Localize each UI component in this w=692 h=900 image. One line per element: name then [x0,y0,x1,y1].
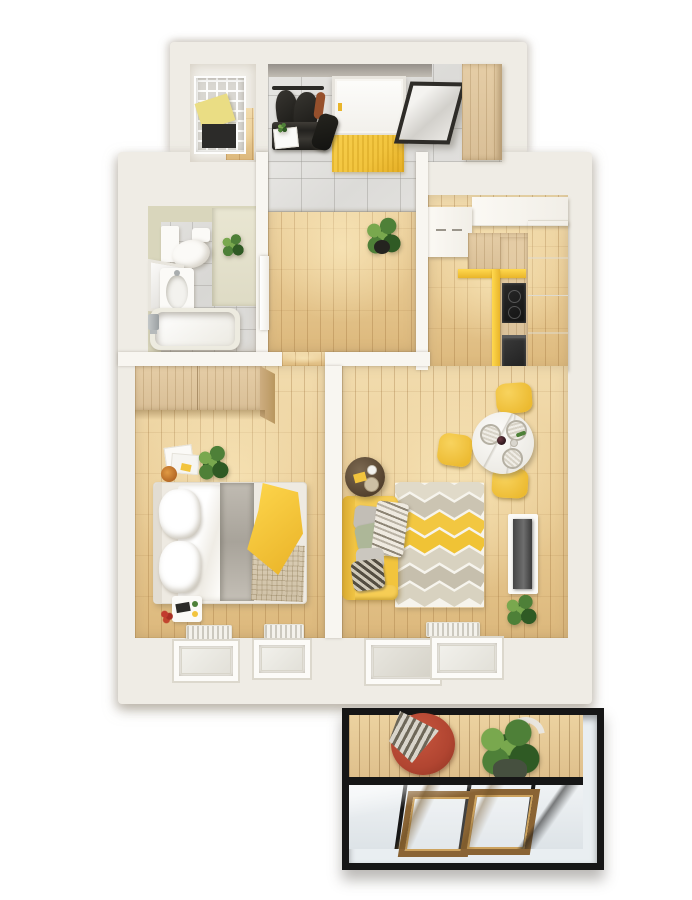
bathtub-faucet [148,314,159,330]
window-pane [261,647,303,671]
bedroom-wardrobe [135,366,262,410]
kitchen-cabinet-block [428,207,472,257]
bed-pillow-2 [158,540,203,594]
sink-faucet [174,270,180,276]
bathtub [150,308,240,350]
orange-decor-dish [161,466,177,482]
balcony-door [366,640,440,684]
door-pane [373,647,433,677]
coffee-table [345,457,385,497]
bathroom-plant [218,232,246,260]
entrance-wood-wardrobe [462,64,502,160]
bathtub-inner [155,312,235,346]
bedroom-plant [193,442,231,486]
cabinet-handle-2 [452,229,462,231]
living-room-plant [500,592,540,630]
black-storage-box [202,124,236,148]
hallway [268,162,416,352]
red-flowers [161,610,173,624]
coffee-table-cup [367,465,377,475]
dining-chair-west [436,432,474,468]
glazing-reflections [349,785,583,849]
dining-table [472,412,534,474]
bathroom [148,206,258,352]
balcony [342,708,604,870]
bathroom-door [260,256,269,330]
bed-gray-blanket [220,483,254,601]
living-room-radiator [426,622,480,637]
kitchen-tall-cabinets [528,220,568,370]
sofa-pillow-patterned [350,558,386,592]
nightstand [172,596,202,622]
kitchen-yellow-strip-v [492,269,500,370]
bedroom-window-1 [174,641,238,681]
dining-chair-north [495,382,533,414]
yellow-doormat [332,135,404,172]
living-room-window [432,638,502,678]
bedroom-radiator-1 [186,625,232,640]
nightstand-yellow-dot [192,611,198,617]
living-room [342,366,568,638]
oven [502,335,526,370]
burner-1 [508,290,521,303]
wardrobe-shadow [135,410,265,420]
tv [513,519,532,589]
nightstand-green-dot [192,601,198,607]
window-pane [181,648,231,674]
bedroom [135,366,325,638]
hallway-plant-pot [374,240,390,254]
yellow-sofa [342,496,398,600]
bedroom-window-2 [254,640,310,678]
sink-basin [166,275,188,309]
entry-door [332,76,406,136]
double-bed [153,482,307,604]
wine-glass-1 [510,439,518,447]
nightstand-tray [175,602,190,613]
bedroom-doorway [282,352,325,366]
wine-bottle [497,436,506,445]
chevron-rug [395,482,484,608]
bench-mini-plant [276,122,288,134]
bedroom-radiator-2 [264,624,304,639]
wall-hallway-living [325,352,430,366]
kitchen [428,195,568,370]
balcony-beam [349,777,583,785]
balcony-deck [349,715,583,777]
coat-rack-rail [272,86,324,90]
storage-closet [190,64,256,162]
cabinet-handle-1 [436,229,446,231]
burner-2 [508,306,521,319]
balcony-glazing [349,785,583,849]
entrance-hall [268,64,502,162]
wall-hallway-kitchen [416,152,428,370]
floor-plan-render [0,0,692,900]
bed-pillow-1 [157,488,202,541]
wall-bedroom-living [325,366,342,638]
window-pane [439,645,495,671]
wall-hallway-bedroom [118,352,282,366]
cooktop [502,283,526,323]
wardrobe-center-seam [197,366,198,410]
